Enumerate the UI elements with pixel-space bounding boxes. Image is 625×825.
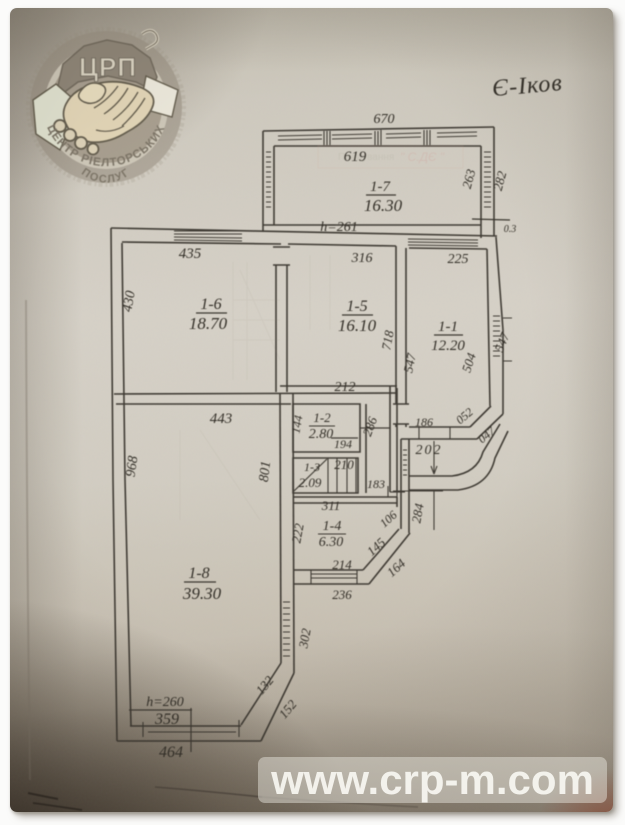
svg-text:214: 214 <box>332 557 352 572</box>
svg-text:12.20: 12.20 <box>431 338 465 354</box>
svg-text:1-2: 1-2 <box>313 410 331 425</box>
svg-text:186: 186 <box>415 415 433 429</box>
svg-text:1-6: 1-6 <box>200 296 221 313</box>
svg-text:1-5: 1-5 <box>346 298 367 315</box>
svg-text:311: 311 <box>321 498 341 513</box>
svg-text:ЦРП: ЦРП <box>79 52 137 82</box>
svg-text:16.10: 16.10 <box>338 316 377 335</box>
svg-text:183: 183 <box>367 477 385 491</box>
svg-text:2.09: 2.09 <box>299 475 322 490</box>
svg-text:Планування: Планування <box>338 152 394 163</box>
svg-text:1-1: 1-1 <box>438 319 458 335</box>
svg-text:39.30: 39.30 <box>182 584 222 603</box>
svg-text:968: 968 <box>124 455 142 478</box>
svg-text:670: 670 <box>374 112 395 127</box>
svg-text:464: 464 <box>159 744 183 761</box>
svg-text:h=261: h=261 <box>320 220 357 235</box>
svg-text:202: 202 <box>416 443 443 458</box>
svg-text:0.3: 0.3 <box>504 224 517 235</box>
svg-text:16.30: 16.30 <box>364 196 403 215</box>
svg-text:236: 236 <box>332 587 352 602</box>
svg-text:194: 194 <box>334 437 352 451</box>
svg-text:316: 316 <box>351 251 373 266</box>
svg-text:6.30: 6.30 <box>319 535 344 550</box>
svg-text:18.70: 18.70 <box>189 314 228 333</box>
svg-text:1-3: 1-3 <box>304 460 320 474</box>
svg-text:" С.ДЄ ": " С.ДЄ " <box>400 150 445 164</box>
svg-text:h=260: h=260 <box>146 695 183 710</box>
svg-text:359: 359 <box>154 711 179 728</box>
svg-text:2.80: 2.80 <box>309 427 334 442</box>
svg-text:1-7: 1-7 <box>370 179 391 195</box>
svg-text:225: 225 <box>448 252 469 267</box>
svg-text:801: 801 <box>257 460 274 483</box>
svg-text:443: 443 <box>210 411 233 427</box>
svg-text:210: 210 <box>334 457 354 472</box>
svg-text:435: 435 <box>179 246 202 262</box>
svg-text:1-4: 1-4 <box>323 519 342 534</box>
svg-text:212: 212 <box>335 380 356 395</box>
svg-text:1-8: 1-8 <box>188 565 209 582</box>
